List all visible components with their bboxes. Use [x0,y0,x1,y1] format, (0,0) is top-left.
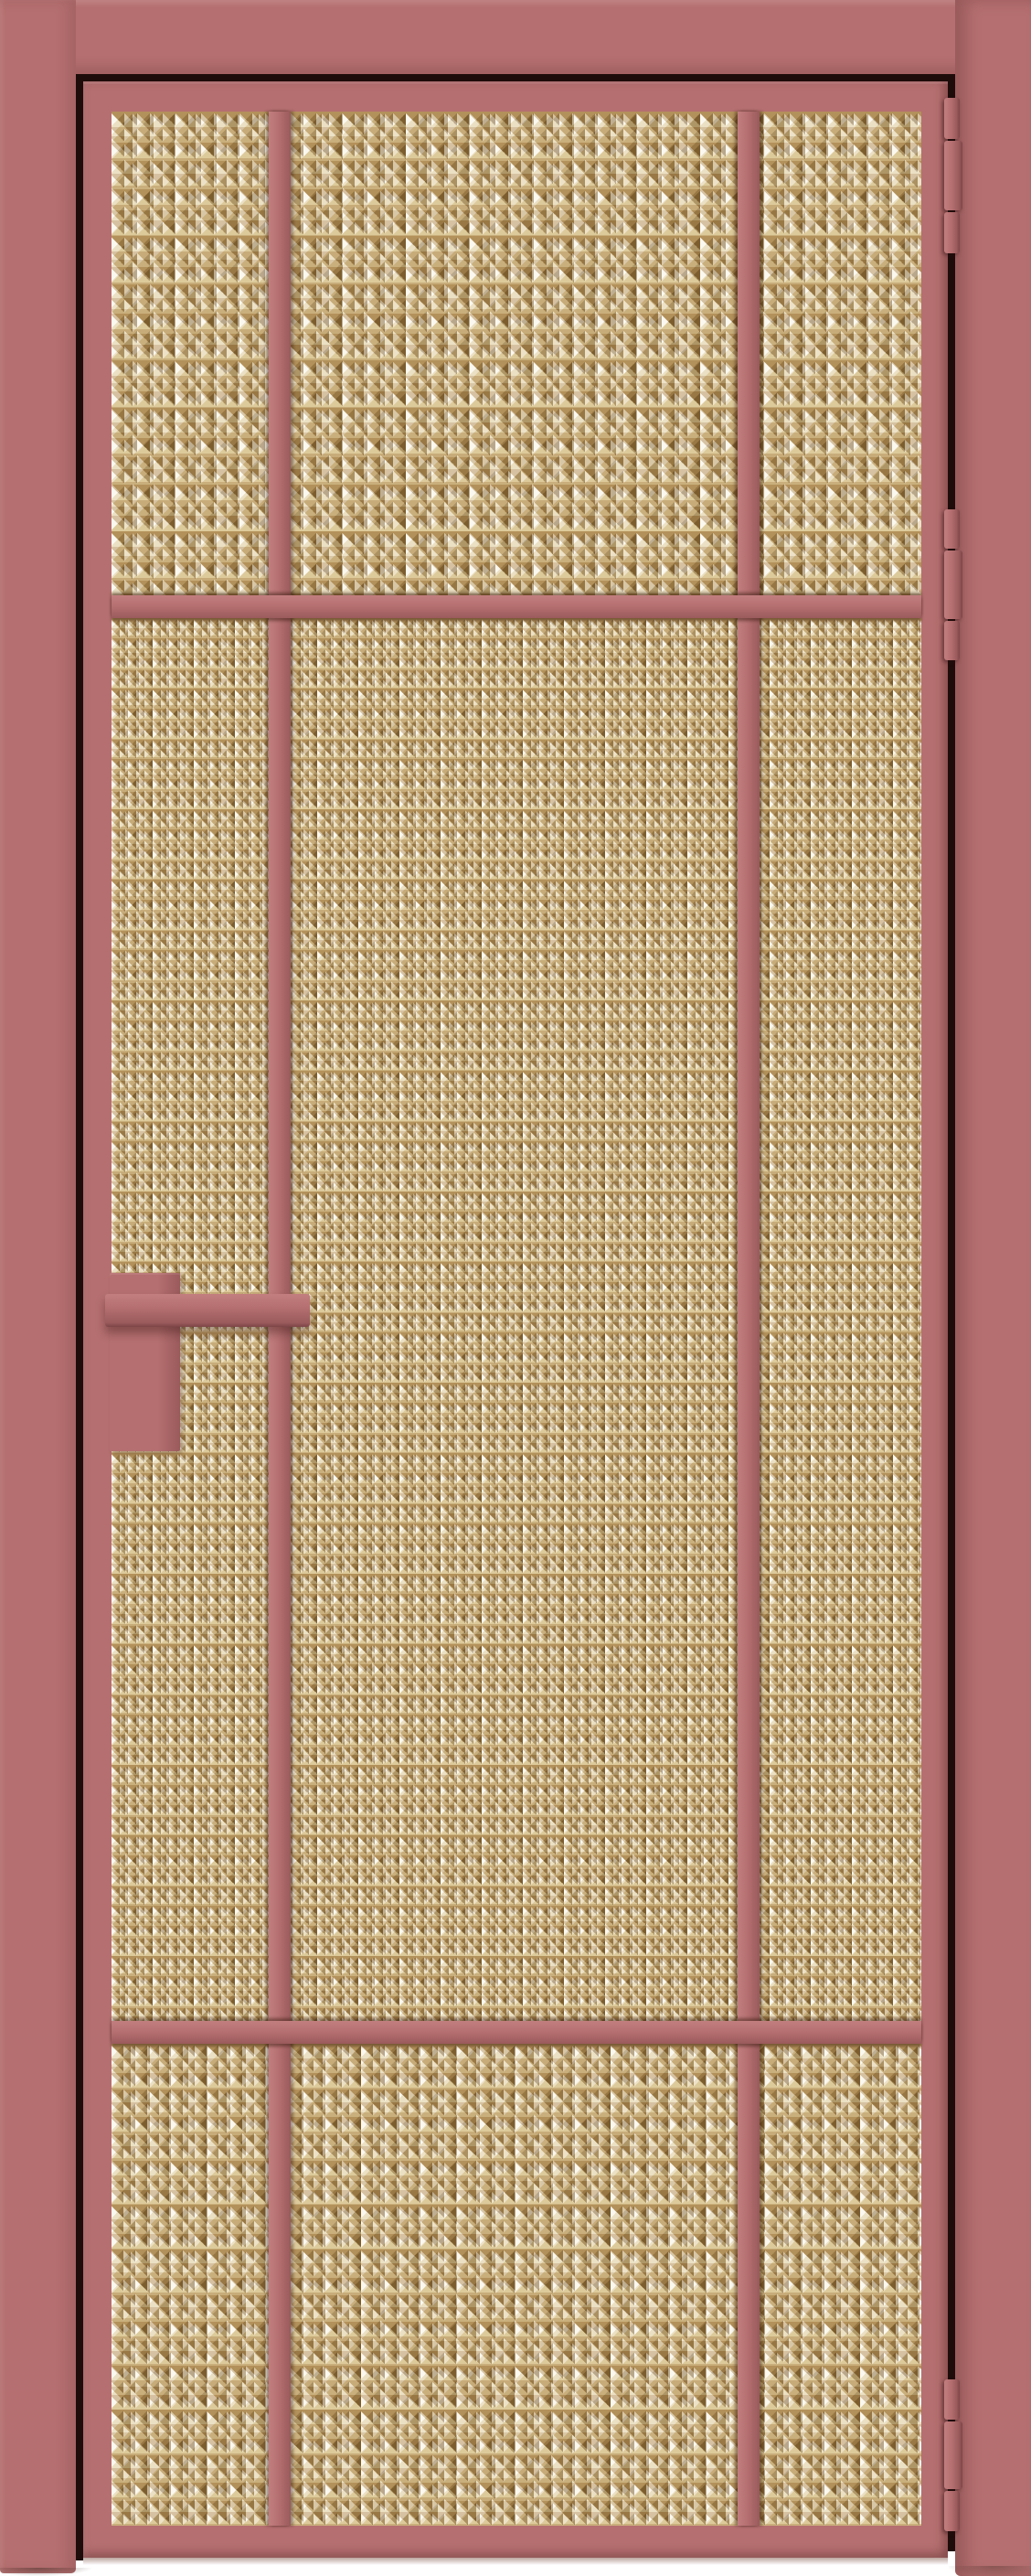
hinge-knuckle [944,2379,960,2420]
hinge-knuckle [944,509,960,549]
transom-top [112,595,921,618]
hinge-middle [944,509,962,660]
door-handle [105,1294,310,1327]
hinge-knuckle [944,141,962,210]
hinge-knuckle [944,2491,960,2531]
glass-pane-bottom-row [112,2044,921,2526]
door-casing-left [0,0,76,2573]
hinge-bottom [944,2379,962,2531]
shadow-under-door [83,2558,948,2565]
shadow-casing-foot-left [0,2568,91,2576]
hinge-knuckle [944,621,960,660]
hinge-knuckle [944,98,960,139]
glass-pane-top-row [112,112,921,618]
transom-bottom [112,2021,921,2044]
shadow-casing-foot-right [949,2566,1031,2576]
reveal-gap-left [76,74,83,2560]
hinge-knuckle [944,2421,962,2490]
hinge-knuckle [944,550,962,618]
reveal-gap-right [948,74,955,2551]
reveal-gap-top [76,74,955,81]
muntin-right [738,112,760,2526]
glass-pane-middle-row [112,618,921,2044]
door-casing-top [0,0,1031,74]
hinge-knuckle [944,212,960,253]
door-casing-right [955,0,1031,2576]
door-product-photo [0,0,1031,2576]
hinge-top [944,98,962,253]
